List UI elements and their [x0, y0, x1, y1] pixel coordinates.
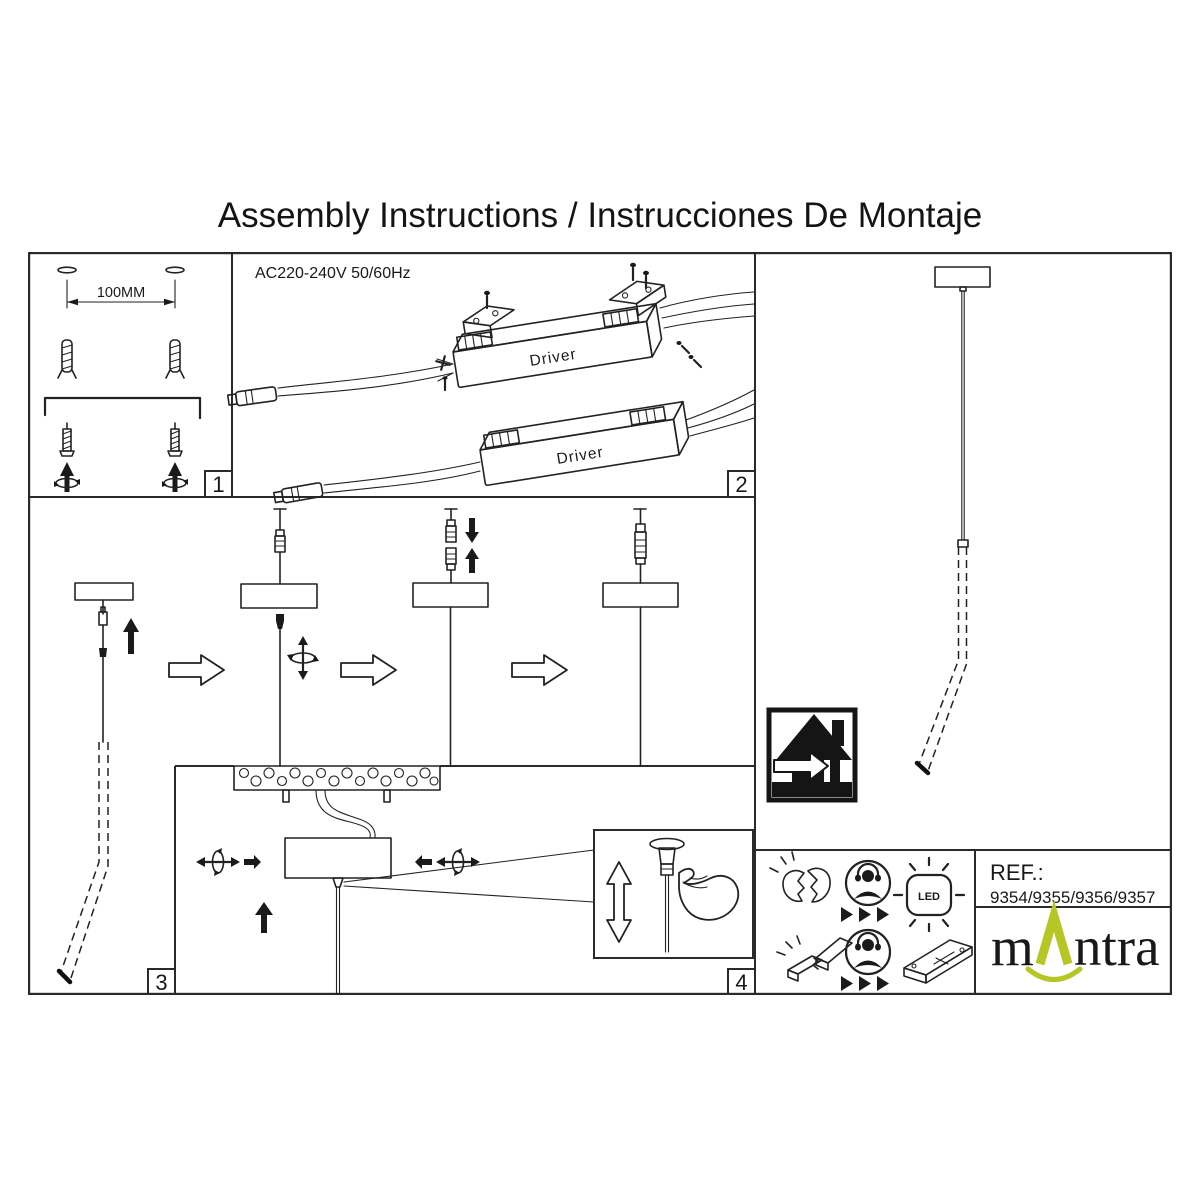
canopy [413, 583, 488, 607]
driver-label: Driver [555, 444, 604, 468]
diagram: 1 2 3 4 100MM [28, 252, 1172, 995]
instruction-sheet: Assembly Instructions / Instrucciones De… [0, 0, 1200, 1200]
step-number-2: 2 [728, 471, 755, 497]
service-person-icon [846, 930, 890, 974]
supply-wire [316, 790, 370, 838]
svg-text:3: 3 [155, 970, 167, 995]
panel-3-assembly-steps [59, 509, 753, 995]
callout-line [344, 886, 594, 902]
mounting-bracket [45, 398, 200, 418]
screw-icon [168, 423, 182, 456]
bracket-icon [607, 277, 668, 319]
driver-label: Driver [528, 346, 577, 370]
lead-wire [324, 462, 480, 493]
lamp-tube [928, 547, 967, 771]
side-screw-icon [415, 855, 432, 869]
mounting-post [283, 790, 289, 802]
led-icon: LED [894, 858, 964, 931]
output-wires [686, 390, 754, 436]
height-arrow [607, 862, 631, 942]
svg-text:4: 4 [735, 970, 747, 995]
driver-unit-1: Driver [450, 304, 664, 388]
down-arrow [465, 518, 479, 543]
screw-rotation-arrow [162, 462, 188, 492]
adjust-hand [679, 869, 738, 920]
wall-plug-icon [166, 340, 184, 378]
lamp-step-insert [59, 583, 139, 982]
step-number-3: 3 [148, 969, 175, 995]
brand-suffix: ntra [1074, 916, 1160, 977]
brand-lambda [1040, 916, 1068, 964]
panel-1-wall-mounting: 100MM [45, 267, 200, 492]
ref-label: REF.: [990, 860, 1044, 885]
screw-rotation-arrow [54, 462, 80, 492]
canopy [241, 584, 317, 608]
panel-4-height-adjust [594, 830, 753, 958]
lamp-step-connected [603, 509, 678, 766]
mounting-hole [58, 267, 76, 273]
step-arrow [341, 655, 396, 685]
lamp-tube [919, 547, 959, 764]
rotate-icon [436, 848, 480, 876]
page-title: Assembly Instructions / Instrucciones De… [0, 196, 1200, 236]
rotate-icon [287, 636, 319, 680]
dimension-line: 100MM [67, 280, 175, 308]
wire-connector [273, 482, 323, 504]
side-screw-icon [244, 855, 261, 869]
canopy [935, 267, 990, 287]
lamp-tube [70, 742, 108, 981]
screw-icon [484, 291, 490, 308]
up-arrow [255, 902, 273, 933]
step-number-4: 4 [728, 969, 755, 995]
svg-text:1: 1 [212, 472, 224, 497]
screw-icon [443, 376, 448, 390]
canopy [603, 583, 678, 607]
panel-2-driver-wiring: AC220-240V 50/60Hz Driver [227, 263, 754, 505]
step-arrow [169, 655, 224, 685]
lamp-step-screw [241, 509, 319, 766]
ceiling-texture [240, 768, 439, 786]
triple-arrow-icon [841, 976, 889, 991]
rotate-icon [196, 848, 240, 876]
finished-pendant-panel [769, 267, 990, 800]
wall-plug-icon [58, 340, 76, 378]
brand-logo: m ntra [991, 916, 1160, 980]
up-arrow [123, 618, 139, 654]
screw-icon [60, 423, 74, 456]
step-arrow [512, 655, 567, 685]
driver-icon [904, 940, 972, 983]
lamp-tube [61, 742, 99, 972]
supply-wire [325, 790, 375, 838]
svg-text:LED: LED [918, 891, 940, 903]
triple-arrow-icon [841, 907, 889, 922]
mounting-hole [166, 267, 184, 273]
broken-driver-icon [777, 936, 852, 981]
indoor-use-icon [769, 710, 855, 800]
driver-unit-2: Driver [477, 402, 691, 486]
ceiling-mount-detail [196, 766, 594, 995]
service-icons-box: LED [770, 852, 972, 991]
mounting-post [384, 790, 390, 802]
canopy [285, 838, 391, 878]
reference-box: REF.: 9354/9355/9356/9357 [990, 860, 1155, 907]
power-rating-label: AC220-240V 50/60Hz [255, 265, 411, 282]
broken-lamp-icon [770, 852, 830, 902]
canopy [75, 583, 133, 600]
brand-smile [1028, 969, 1080, 980]
step-number-1: 1 [205, 471, 232, 497]
service-person-icon [846, 861, 890, 905]
lamp-step-connect [413, 509, 488, 766]
svg-text:2: 2 [735, 472, 747, 497]
wire-connector [227, 387, 276, 408]
callout-line [344, 850, 594, 882]
output-wires [660, 292, 754, 367]
dimension-label: 100MM [97, 285, 145, 301]
ref-numbers: 9354/9355/9356/9357 [990, 888, 1155, 907]
lead-wire [278, 359, 453, 396]
up-arrow [465, 548, 479, 573]
